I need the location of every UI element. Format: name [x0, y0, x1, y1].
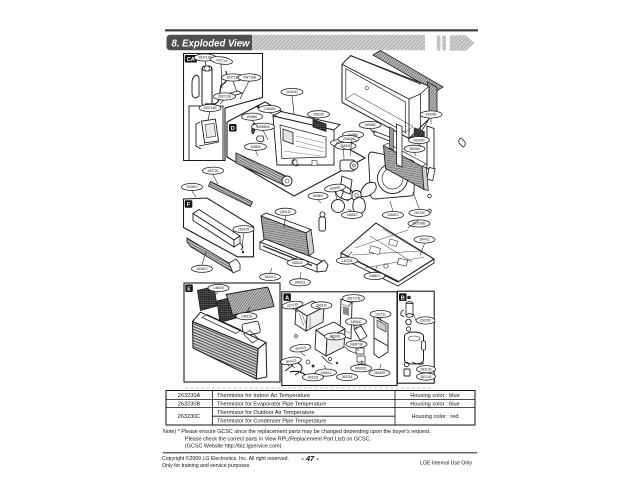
svg-text:263714B: 263714B	[203, 106, 217, 110]
svg-text:246801: 246801	[369, 274, 380, 278]
svg-text:- 47 -: - 47 -	[301, 454, 319, 463]
svg-text:Thermistor for Evaporator Pipe: Thermistor for Evaporator Pipe Temperatu…	[217, 402, 326, 408]
svg-text:264411: 264411	[419, 238, 430, 242]
svg-text:263013: 263013	[264, 275, 275, 279]
svg-text:EBR738: EBR738	[350, 343, 362, 347]
svg-text:346812: 346812	[320, 371, 331, 375]
svg-text:263081: 263081	[329, 335, 340, 339]
svg-text:263140: 263140	[420, 375, 431, 379]
svg-text:263750: 263750	[414, 211, 425, 215]
svg-text:263230C: 263230C	[178, 414, 201, 420]
svg-text:263605: 263605	[343, 137, 354, 141]
svg-text:137211: 137211	[375, 312, 386, 316]
svg-text:W4960: W4960	[247, 115, 258, 119]
svg-text:134608: 134608	[264, 107, 275, 111]
svg-text:263030: 263030	[313, 113, 324, 117]
svg-text:132025: 132025	[341, 259, 352, 263]
svg-text:263230A: 263230A	[178, 393, 201, 399]
svg-text:W0800: W0800	[313, 194, 324, 198]
svg-text:349811: 349811	[295, 281, 306, 285]
svg-text:246810: 246810	[387, 213, 398, 217]
svg-text:Thermistor for Condenser Pipe: Thermistor for Condenser Pipe Temperatur…	[217, 419, 326, 425]
svg-text:D: D	[231, 126, 235, 132]
svg-text:263118: 263118	[308, 376, 319, 380]
svg-text:346810: 346810	[346, 213, 357, 217]
svg-text:8. Exploded View: 8. Exploded View	[172, 37, 251, 49]
svg-text:263090: 263090	[413, 138, 424, 142]
svg-text:(GCSC Website http://biz.lgse: (GCSC Website http://biz.lgservice.com)	[185, 443, 282, 449]
svg-text:Housing color : red: Housing color : red	[412, 414, 459, 420]
svg-text:A: A	[285, 295, 289, 301]
svg-text:263022: 263022	[292, 261, 303, 265]
svg-text:Thermistor for Indoor Air Temp: Thermistor for Indoor Air Temperature	[217, 393, 310, 399]
svg-text:349850: 349850	[364, 123, 375, 127]
svg-text:263410: 263410	[280, 210, 291, 214]
svg-text:264810: 264810	[340, 144, 351, 148]
svg-text:263405: 263405	[374, 371, 385, 375]
svg-text:263040: 263040	[286, 90, 297, 94]
svg-text:263230B: 263230B	[178, 402, 201, 408]
svg-text:146300: 146300	[213, 286, 224, 290]
svg-text:263080: 263080	[425, 113, 436, 117]
svg-text:Housing color : blue: Housing color : blue	[410, 393, 459, 399]
svg-text:F: F	[187, 202, 191, 208]
svg-text:Only for training and service: Only for training and service purposes	[162, 463, 250, 469]
svg-text:263116: 263116	[342, 375, 353, 379]
svg-text:263810: 263810	[186, 185, 197, 189]
svg-text:Note) * Please ensure GCSC sin: Note) * Please ensure GCSC since the rep…	[163, 429, 431, 435]
svg-text:Thermistor for Outdoor Air Tem: Thermistor for Outdoor Air Temperature	[217, 410, 315, 416]
svg-text:349811: 349811	[250, 145, 261, 149]
svg-text:263700B: 263700B	[412, 222, 426, 226]
svg-text:263150: 263150	[420, 319, 431, 323]
svg-text:263716B: 263716B	[243, 76, 257, 80]
svg-text:Please check the correct part: Please check the correct parts in View R…	[185, 436, 371, 442]
svg-text:Copyright ©2009 LG Electronics: Copyright ©2009 LG Electronics. Inc. All…	[162, 455, 289, 462]
svg-text:B: B	[401, 295, 405, 301]
svg-text:W52011: W52011	[355, 367, 367, 371]
svg-text:349850A: 349850A	[256, 125, 270, 129]
svg-text:349640: 349640	[350, 320, 361, 324]
svg-text:263050: 263050	[409, 147, 420, 151]
svg-text:263130: 263130	[420, 367, 431, 371]
svg-text:Housing color : blue: Housing color : blue	[410, 402, 459, 408]
svg-text:146310: 146310	[241, 314, 252, 318]
svg-text:263711B: 263711B	[218, 95, 232, 99]
svg-text:LGE Internal Use Only: LGE Internal Use Only	[420, 461, 472, 467]
svg-text:263717B: 263717B	[347, 296, 361, 300]
svg-text:263415: 263415	[238, 227, 249, 231]
svg-text:263610: 263610	[196, 267, 207, 271]
svg-text:263700: 263700	[207, 169, 218, 173]
svg-text:E: E	[187, 286, 191, 292]
